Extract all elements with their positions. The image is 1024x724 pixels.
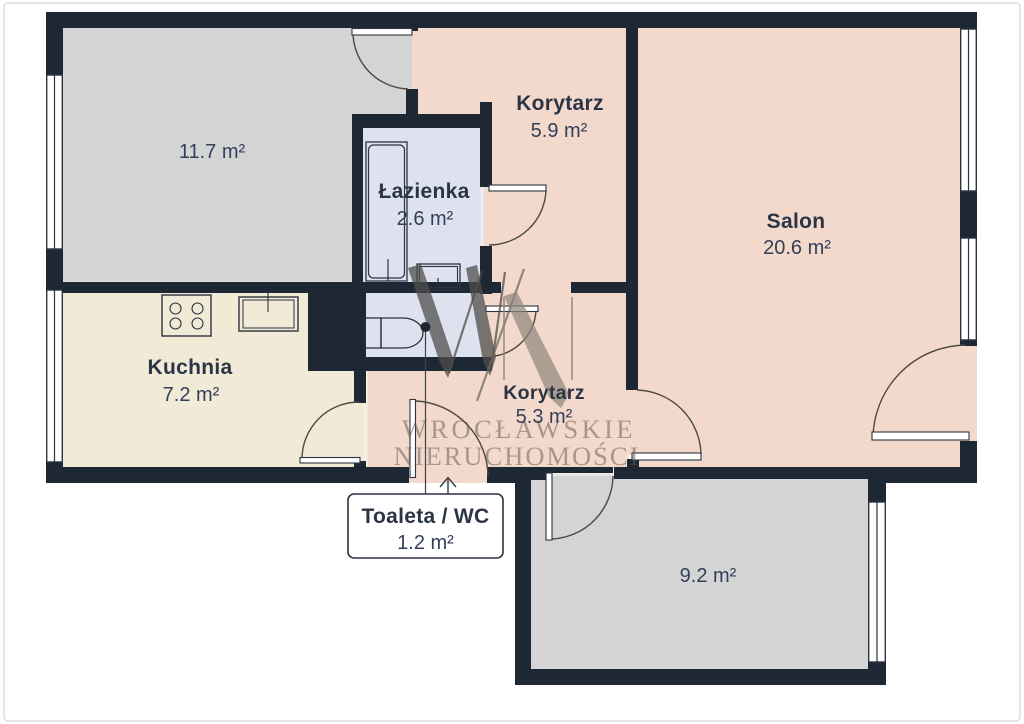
svg-text:NIERUCHOMOŚCI: NIERUCHOMOŚCI <box>394 441 641 471</box>
svg-text:Toaleta / WC: Toaleta / WC <box>361 505 489 528</box>
svg-text:Korytarz: Korytarz <box>516 92 604 115</box>
svg-text:1.2 m²: 1.2 m² <box>397 532 454 554</box>
svg-text:Salon: Salon <box>767 210 826 233</box>
svg-text:Korytarz: Korytarz <box>503 382 585 404</box>
svg-text:Kuchnia: Kuchnia <box>148 356 233 379</box>
svg-text:11.7 m²: 11.7 m² <box>179 141 246 163</box>
svg-text:20.6 m²: 20.6 m² <box>763 237 831 259</box>
svg-text:Łazienka: Łazienka <box>378 180 469 203</box>
svg-text:5.9 m²: 5.9 m² <box>531 120 588 142</box>
svg-text:5.3 m²: 5.3 m² <box>516 406 573 428</box>
svg-text:7.2 m²: 7.2 m² <box>163 384 220 406</box>
svg-text:2.6 m²: 2.6 m² <box>397 208 454 230</box>
svg-text:9.2 m²: 9.2 m² <box>680 565 737 587</box>
